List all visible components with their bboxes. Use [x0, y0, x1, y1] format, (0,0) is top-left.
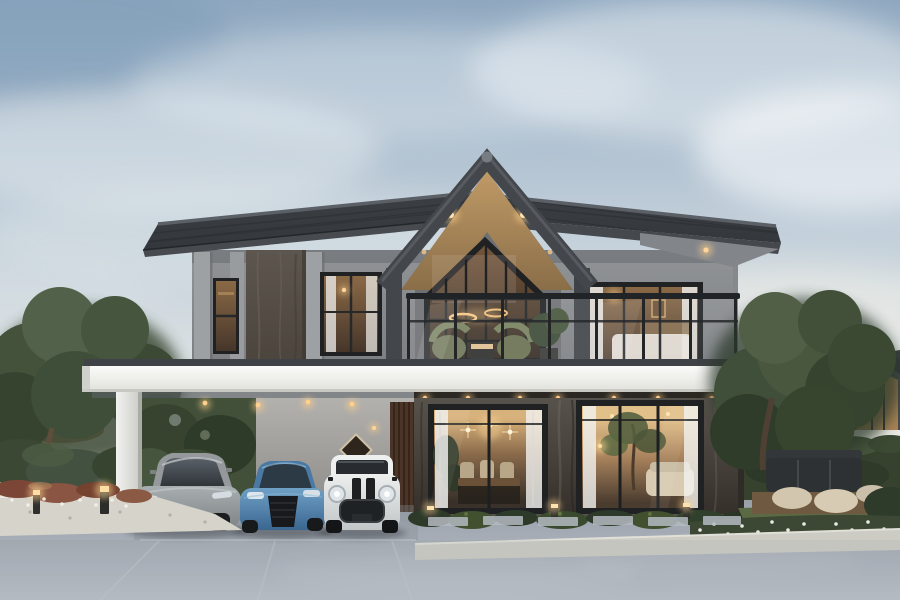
car-white-mini — [318, 455, 406, 539]
wheel — [382, 520, 398, 533]
curtain — [583, 406, 596, 508]
grille — [268, 496, 298, 527]
architectural-rendering — [0, 0, 900, 600]
stone-accent-panel — [246, 250, 306, 368]
wheel — [307, 518, 323, 531]
vignette — [0, 540, 900, 600]
pouf — [772, 487, 812, 509]
ground-floor — [414, 392, 744, 520]
ridge-finial — [482, 152, 493, 163]
balcony — [406, 293, 740, 366]
balcony-railing — [406, 293, 740, 366]
living-window — [576, 400, 704, 514]
wheel — [242, 520, 258, 533]
upper-left-window — [320, 272, 382, 356]
upper-narrow-window — [213, 278, 239, 354]
wheel — [326, 520, 342, 533]
house-rendering-canvas — [0, 0, 900, 600]
dining-window — [428, 404, 548, 514]
pouf — [814, 489, 858, 513]
